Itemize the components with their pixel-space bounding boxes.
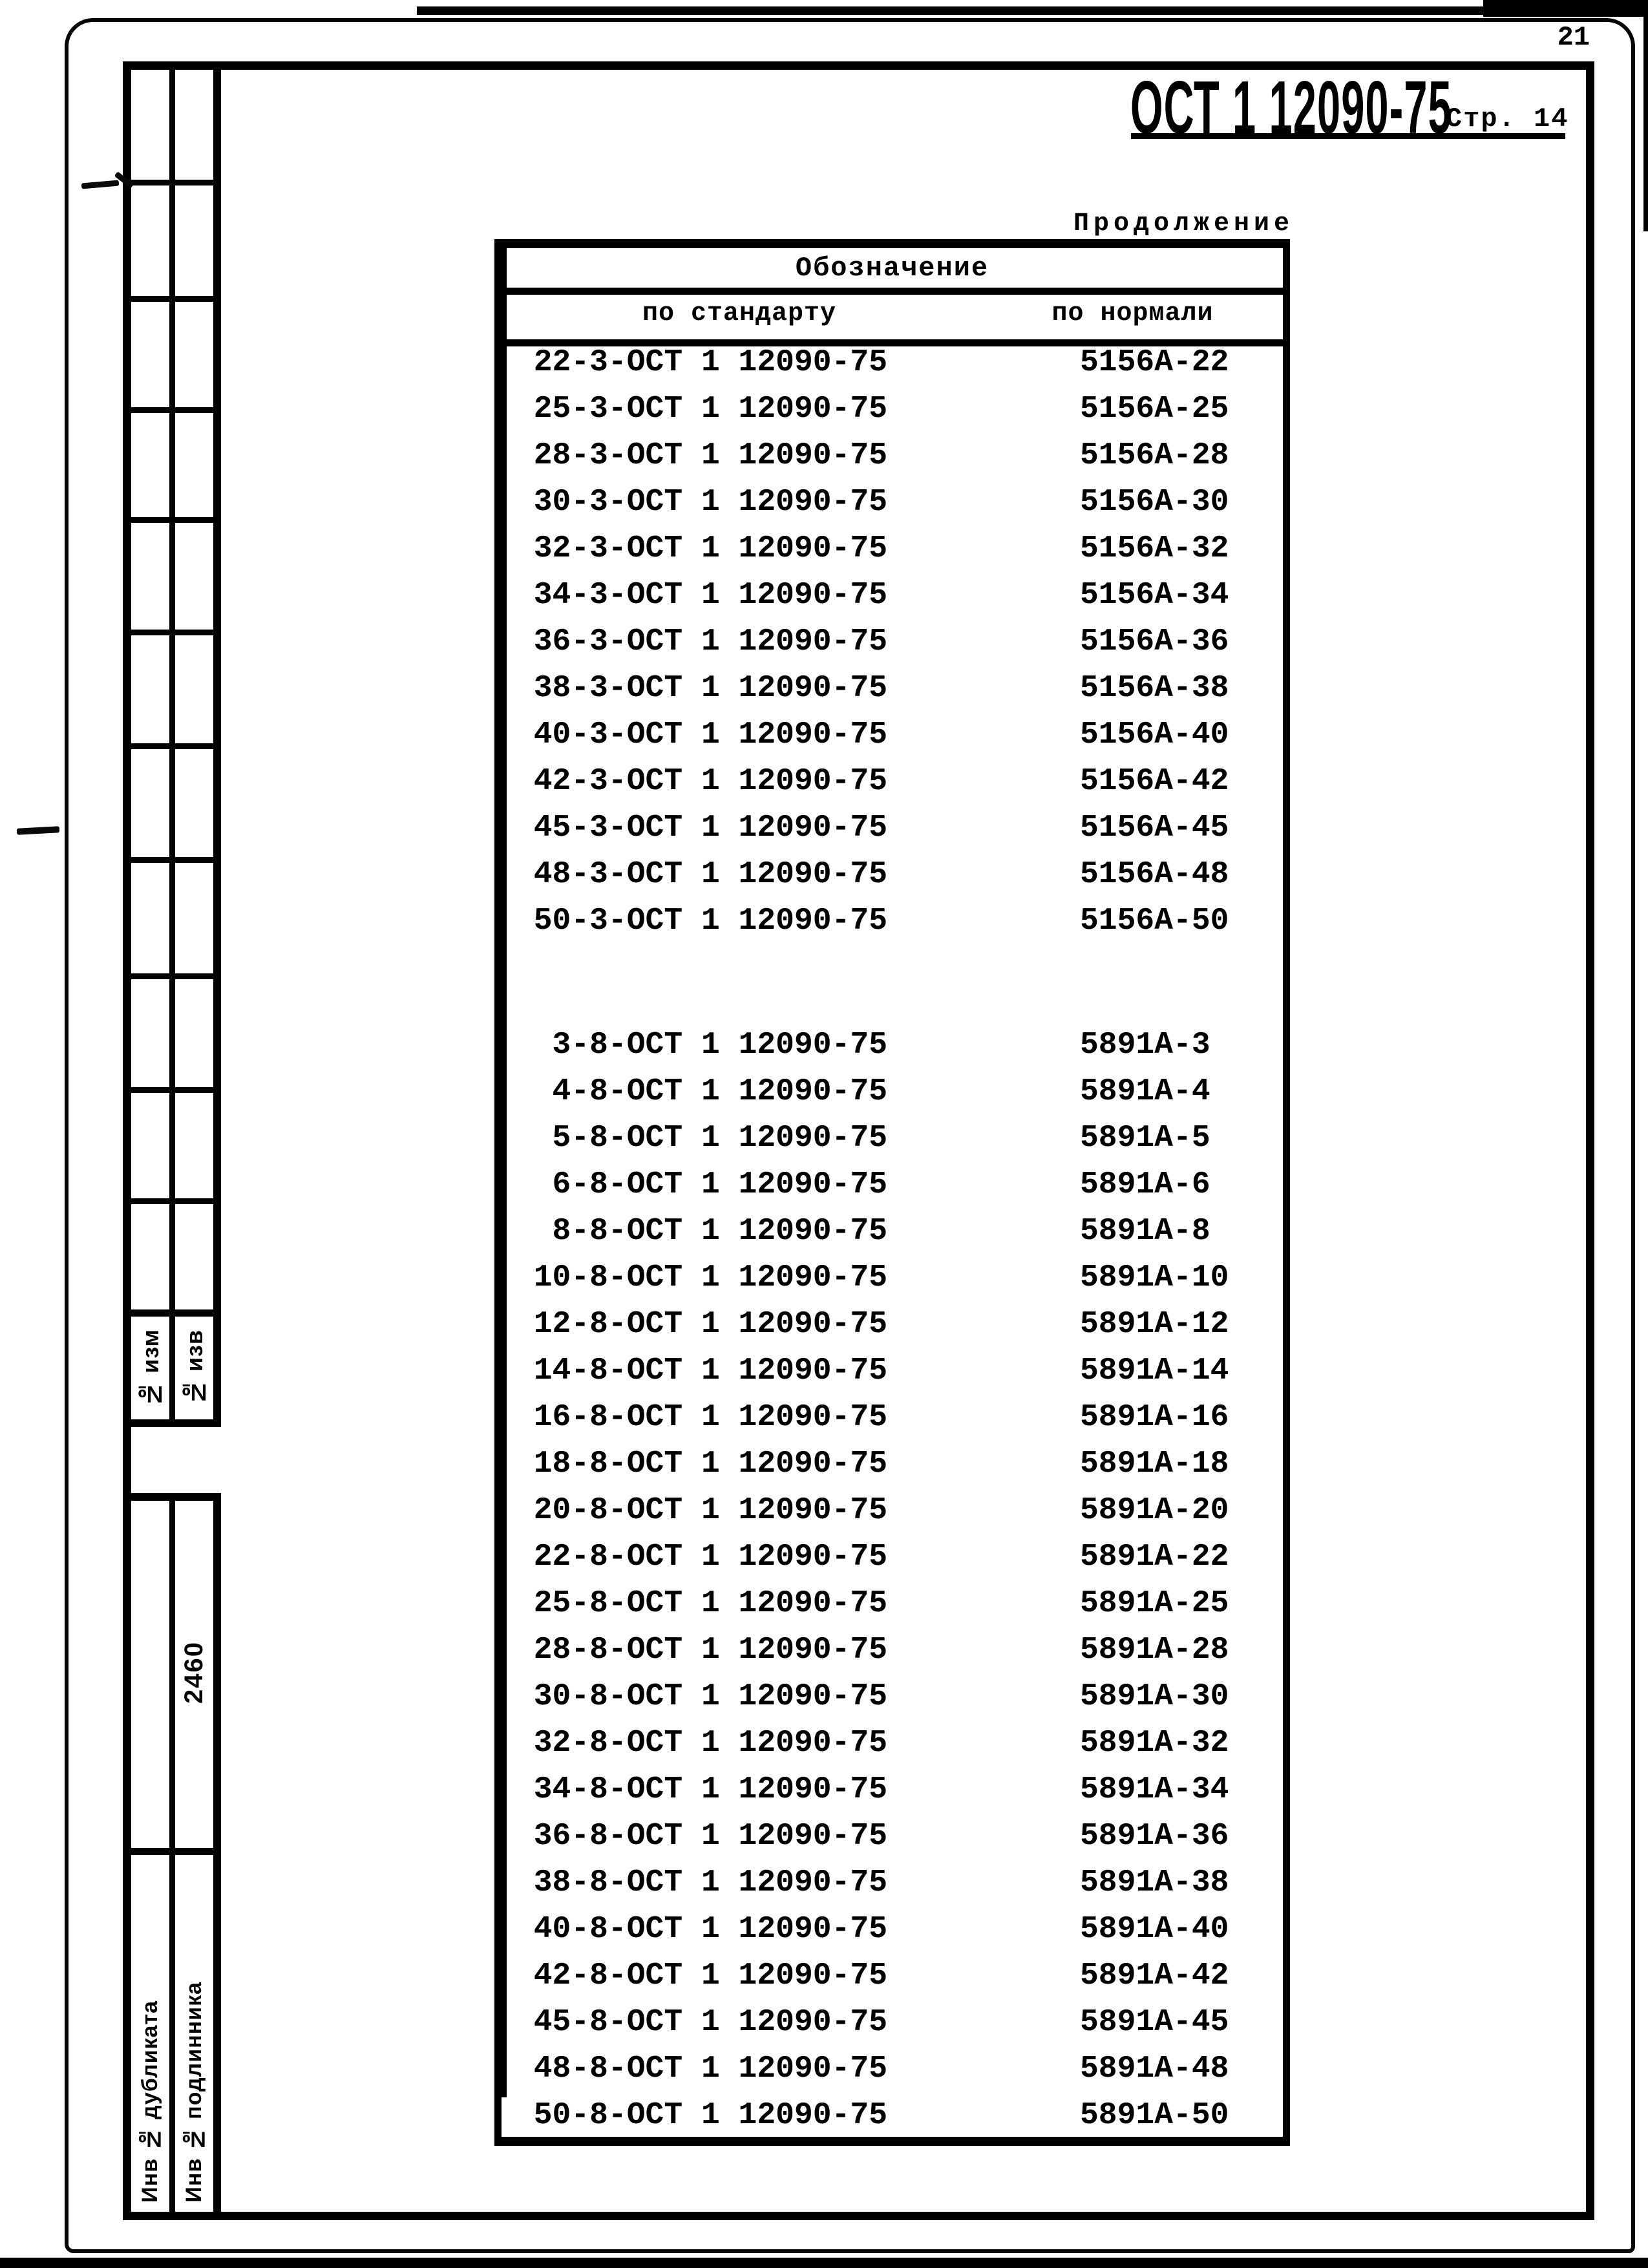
cell-standard-designation: 28-8-ОСТ 1 12090-75 bbox=[502, 1633, 977, 1668]
table-rows-group-1: 22-3-ОСТ 1 12090-755156А-2225-3-ОСТ 1 12… bbox=[502, 339, 1283, 944]
table-row: 38-3-ОСТ 1 12090-755156А-38 bbox=[502, 665, 1283, 712]
cell-normal-designation: 5891А-8 bbox=[977, 1214, 1283, 1249]
cell-normal-designation: 5891А-4 bbox=[977, 1074, 1283, 1109]
sidebar-cell-izv: № изв bbox=[175, 1317, 213, 1419]
table-row: 45-8-ОСТ 1 12090-755891А-45 bbox=[502, 1999, 1283, 2046]
cell-normal-designation: 5891А-48 bbox=[977, 2051, 1283, 2086]
scanned-standard-page: { "colors": { "ink": "#000000", "paper":… bbox=[0, 0, 1648, 2268]
scan-artifact-top bbox=[417, 6, 1486, 15]
cell-normal-designation: 5891А-40 bbox=[977, 1912, 1283, 1947]
form-code: 2460 bbox=[180, 1641, 209, 1704]
cell-standard-designation: 45-8-ОСТ 1 12090-75 bbox=[502, 2005, 977, 2040]
cell-normal-designation: 5156А-32 bbox=[977, 531, 1283, 566]
table-row: 20-8-ОСТ 1 12090-755891А-20 bbox=[502, 1487, 1283, 1534]
table-header-designation: Обозначение bbox=[502, 248, 1283, 288]
cell-normal-designation: 5891А-18 bbox=[977, 1447, 1283, 1481]
table-row: 30-8-ОСТ 1 12090-755891А-30 bbox=[502, 1673, 1283, 1720]
cell-normal-designation: 5891А-42 bbox=[977, 1958, 1283, 1993]
table-row: 40-8-ОСТ 1 12090-755891А-40 bbox=[502, 1906, 1283, 1953]
table-row: 42-8-ОСТ 1 12090-755891А-42 bbox=[502, 1953, 1283, 1999]
header-underline bbox=[1131, 133, 1565, 139]
page-number: 21 bbox=[1545, 22, 1590, 53]
cell-normal-designation: 5891А-38 bbox=[977, 1865, 1283, 1900]
table-row: 28-8-ОСТ 1 12090-755891А-28 bbox=[502, 1627, 1283, 1673]
table-row: 34-3-ОСТ 1 12090-755156А-34 bbox=[502, 572, 1283, 619]
cell-normal-designation: 5891А-28 bbox=[977, 1633, 1283, 1668]
sidebar-cell-inv-duplicate: Инв № дубликата bbox=[131, 1855, 169, 2212]
table-row: 25-3-ОСТ 1 12090-755156А-25 bbox=[502, 386, 1283, 432]
table-row: 38-8-ОСТ 1 12090-755891А-38 bbox=[502, 1860, 1283, 1906]
table-row: 50-3-ОСТ 1 12090-755156А-50 bbox=[502, 898, 1283, 944]
cell-standard-designation: 50-3-ОСТ 1 12090-75 bbox=[502, 904, 977, 938]
table-row: 8-8-ОСТ 1 12090-755891А-8 bbox=[502, 1208, 1283, 1255]
table-row: 48-3-ОСТ 1 12090-755156А-48 bbox=[502, 851, 1283, 898]
cell-standard-designation: 40-8-ОСТ 1 12090-75 bbox=[502, 1912, 977, 1947]
cell-standard-designation: 14-8-ОСТ 1 12090-75 bbox=[502, 1353, 977, 1388]
table-row: 36-3-ОСТ 1 12090-755156А-36 bbox=[502, 619, 1283, 665]
cell-standard-designation: 25-8-ОСТ 1 12090-75 bbox=[502, 1586, 977, 1621]
cell-standard-designation: 36-3-ОСТ 1 12090-75 bbox=[502, 624, 977, 659]
sidebar-hline bbox=[131, 630, 221, 635]
cell-normal-designation: 5891А-45 bbox=[977, 2005, 1283, 2040]
sidebar-hline bbox=[131, 407, 221, 413]
cell-normal-designation: 5156А-42 bbox=[977, 764, 1283, 799]
margin-tick-mark-2 bbox=[17, 826, 59, 834]
cell-normal-designation: 5891А-50 bbox=[977, 2098, 1283, 2133]
table-row: 22-8-ОСТ 1 12090-755891А-22 bbox=[502, 1534, 1283, 1580]
cell-standard-designation: 16-8-ОСТ 1 12090-75 bbox=[502, 1400, 977, 1435]
cell-standard-designation: 34-8-ОСТ 1 12090-75 bbox=[502, 1772, 977, 1807]
cell-standard-designation: 40-3-ОСТ 1 12090-75 bbox=[502, 717, 977, 752]
cell-standard-designation: 38-3-ОСТ 1 12090-75 bbox=[502, 671, 977, 706]
cell-standard-designation: 32-8-ОСТ 1 12090-75 bbox=[502, 1726, 977, 1761]
sidebar-cell-form-code: 2460 bbox=[175, 1501, 213, 1843]
cell-standard-designation: 3-8-ОСТ 1 12090-75 bbox=[502, 1028, 977, 1063]
cell-standard-designation: 10-8-ОСТ 1 12090-75 bbox=[502, 1260, 977, 1295]
table-row: 6-8-ОСТ 1 12090-755891А-6 bbox=[502, 1161, 1283, 1208]
cell-standard-designation: 48-3-ОСТ 1 12090-75 bbox=[502, 857, 977, 892]
table-row: 34-8-ОСТ 1 12090-755891А-34 bbox=[502, 1766, 1283, 1813]
sidebar-hline bbox=[131, 857, 221, 863]
cell-normal-designation: 5156А-45 bbox=[977, 811, 1283, 845]
cell-standard-designation: 30-8-ОСТ 1 12090-75 bbox=[502, 1679, 977, 1714]
cell-standard-designation: 42-8-ОСТ 1 12090-75 bbox=[502, 1958, 977, 1993]
cell-normal-designation: 5891А-34 bbox=[977, 1772, 1283, 1807]
cell-standard-designation: 42-3-ОСТ 1 12090-75 bbox=[502, 764, 977, 799]
column-header-normal: по нормали bbox=[982, 288, 1283, 339]
cell-normal-designation: 5891А-22 bbox=[977, 1540, 1283, 1574]
cell-standard-designation: 8-8-ОСТ 1 12090-75 bbox=[502, 1214, 977, 1249]
sidebar-block-b-top bbox=[131, 1493, 221, 1501]
sidebar-hline bbox=[131, 1087, 221, 1093]
inv-original-label: Инв № подлинника bbox=[182, 1982, 207, 2203]
table-row: 42-3-ОСТ 1 12090-755156А-42 bbox=[502, 758, 1283, 805]
cell-standard-designation: 32-3-ОСТ 1 12090-75 bbox=[502, 531, 977, 566]
cell-normal-designation: 5156А-36 bbox=[977, 624, 1283, 659]
table-rows-group-2: 3-8-ОСТ 1 12090-755891А-34-8-ОСТ 1 12090… bbox=[502, 1022, 1283, 2139]
cell-normal-designation: 5156А-48 bbox=[977, 857, 1283, 892]
sidebar-hline bbox=[131, 180, 221, 185]
cell-normal-designation: 5156А-30 bbox=[977, 485, 1283, 520]
cell-normal-designation: 5156А-34 bbox=[977, 578, 1283, 613]
table-row: 45-3-ОСТ 1 12090-755156А-45 bbox=[502, 805, 1283, 851]
cell-normal-designation: 5156А-25 bbox=[977, 392, 1283, 427]
table-row: 16-8-ОСТ 1 12090-755891А-16 bbox=[502, 1394, 1283, 1441]
cell-standard-designation: 4-8-ОСТ 1 12090-75 bbox=[502, 1074, 977, 1109]
table-row: 12-8-ОСТ 1 12090-755891А-12 bbox=[502, 1301, 1283, 1348]
cell-standard-designation: 38-8-ОСТ 1 12090-75 bbox=[502, 1865, 977, 1900]
table-row: 10-8-ОСТ 1 12090-755891А-10 bbox=[502, 1255, 1283, 1301]
cell-normal-designation: 5156А-28 bbox=[977, 438, 1283, 473]
table-row: 22-3-ОСТ 1 12090-755156А-22 bbox=[502, 339, 1283, 386]
cell-standard-designation: 48-8-ОСТ 1 12090-75 bbox=[502, 2051, 977, 2086]
cell-normal-designation: 5891А-16 bbox=[977, 1400, 1283, 1435]
cell-standard-designation: 34-3-ОСТ 1 12090-75 bbox=[502, 578, 977, 613]
izv-label: № изв bbox=[181, 1330, 208, 1406]
table-row: 36-8-ОСТ 1 12090-755891А-36 bbox=[502, 1813, 1283, 1860]
cell-normal-designation: 5891А-36 bbox=[977, 1819, 1283, 1854]
table-row: 3-8-ОСТ 1 12090-755891А-3 bbox=[502, 1022, 1283, 1068]
table-row: 30-3-ОСТ 1 12090-755156А-30 bbox=[502, 479, 1283, 525]
cell-standard-designation: 36-8-ОСТ 1 12090-75 bbox=[502, 1819, 977, 1854]
cell-standard-designation: 45-3-ОСТ 1 12090-75 bbox=[502, 811, 977, 845]
table-row: 28-3-ОСТ 1 12090-755156А-28 bbox=[502, 432, 1283, 479]
column-header-standard: по стандарту bbox=[502, 288, 977, 339]
sidebar-block-a-bottom bbox=[131, 1419, 221, 1427]
cell-normal-designation: 5891А-32 bbox=[977, 1726, 1283, 1761]
cell-standard-designation: 18-8-ОСТ 1 12090-75 bbox=[502, 1447, 977, 1481]
cell-standard-designation: 20-8-ОСТ 1 12090-75 bbox=[502, 1493, 977, 1528]
table-row: 48-8-ОСТ 1 12090-755891А-48 bbox=[502, 2046, 1283, 2092]
scan-artifact-top-right bbox=[1483, 0, 1648, 17]
cell-standard-designation: 50-8-ОСТ 1 12090-75 bbox=[502, 2098, 977, 2133]
cell-standard-designation: 22-3-ОСТ 1 12090-75 bbox=[502, 345, 977, 380]
table-row: 25-8-ОСТ 1 12090-755891А-25 bbox=[502, 1580, 1283, 1627]
sidebar-hline bbox=[131, 1309, 221, 1317]
sidebar-hline bbox=[131, 296, 221, 302]
cell-normal-designation: 5156А-22 bbox=[977, 345, 1283, 380]
cell-normal-designation: 5156А-50 bbox=[977, 904, 1283, 938]
cell-standard-designation: 5-8-ОСТ 1 12090-75 bbox=[502, 1121, 977, 1156]
cell-standard-designation: 6-8-ОСТ 1 12090-75 bbox=[502, 1167, 977, 1202]
table-row: 14-8-ОСТ 1 12090-755891А-14 bbox=[502, 1348, 1283, 1394]
table-row: 18-8-ОСТ 1 12090-755891А-18 bbox=[502, 1441, 1283, 1487]
sidebar-hline bbox=[131, 1198, 221, 1204]
izm-label: № изм bbox=[137, 1329, 164, 1408]
table-row: 32-3-ОСТ 1 12090-755156А-32 bbox=[502, 525, 1283, 572]
sidebar-hline bbox=[131, 517, 221, 523]
cell-normal-designation: 5891А-14 bbox=[977, 1353, 1283, 1388]
sidebar-block-b-divider bbox=[131, 1848, 221, 1855]
cell-normal-designation: 5891А-12 bbox=[977, 1307, 1283, 1342]
cell-normal-designation: 5891А-10 bbox=[977, 1260, 1283, 1295]
sidebar-hline bbox=[131, 973, 221, 979]
sidebar-cell-inv-original: Инв № подлинника bbox=[175, 1855, 213, 2212]
sidebar-vline-outer-lower bbox=[213, 1493, 221, 2220]
sidebar-hline bbox=[131, 743, 221, 749]
cell-normal-designation: 5891А-30 bbox=[977, 1679, 1283, 1714]
table-row: 32-8-ОСТ 1 12090-755891А-32 bbox=[502, 1720, 1283, 1766]
designation-table: Обозначение по стандарту по нормали 22-3… bbox=[494, 239, 1290, 2146]
table-row: 4-8-ОСТ 1 12090-755891А-4 bbox=[502, 1068, 1283, 1115]
sidebar-vline-inner-lower bbox=[169, 1493, 175, 2220]
cell-normal-designation: 5891А-6 bbox=[977, 1167, 1283, 1202]
cell-normal-designation: 5891А-5 bbox=[977, 1121, 1283, 1156]
sidebar-cell-izm: № изм bbox=[131, 1317, 169, 1419]
continuation-label: Продолжение bbox=[969, 209, 1294, 238]
cell-standard-designation: 22-8-ОСТ 1 12090-75 bbox=[502, 1540, 977, 1574]
cell-standard-designation: 25-3-ОСТ 1 12090-75 bbox=[502, 392, 977, 427]
cell-normal-designation: 5891А-20 bbox=[977, 1493, 1283, 1528]
scan-artifact-bottom bbox=[0, 2258, 1648, 2268]
table-row: 5-8-ОСТ 1 12090-755891А-5 bbox=[502, 1115, 1283, 1161]
cell-standard-designation: 28-3-ОСТ 1 12090-75 bbox=[502, 438, 977, 473]
cell-standard-designation: 30-3-ОСТ 1 12090-75 bbox=[502, 485, 977, 520]
cell-normal-designation: 5891А-3 bbox=[977, 1028, 1283, 1063]
cell-normal-designation: 5156А-38 bbox=[977, 671, 1283, 706]
table-row: 50-8-ОСТ 1 12090-755891А-50 bbox=[502, 2092, 1283, 2139]
page-label: Стр. 14 bbox=[1446, 103, 1569, 134]
cell-normal-designation: 5891А-25 bbox=[977, 1586, 1283, 1621]
inv-duplicate-label: Инв № дубликата bbox=[138, 2000, 163, 2203]
cell-standard-designation: 12-8-ОСТ 1 12090-75 bbox=[502, 1307, 977, 1342]
table-row: 40-3-ОСТ 1 12090-755156А-40 bbox=[502, 712, 1283, 758]
cell-normal-designation: 5156А-40 bbox=[977, 717, 1283, 752]
